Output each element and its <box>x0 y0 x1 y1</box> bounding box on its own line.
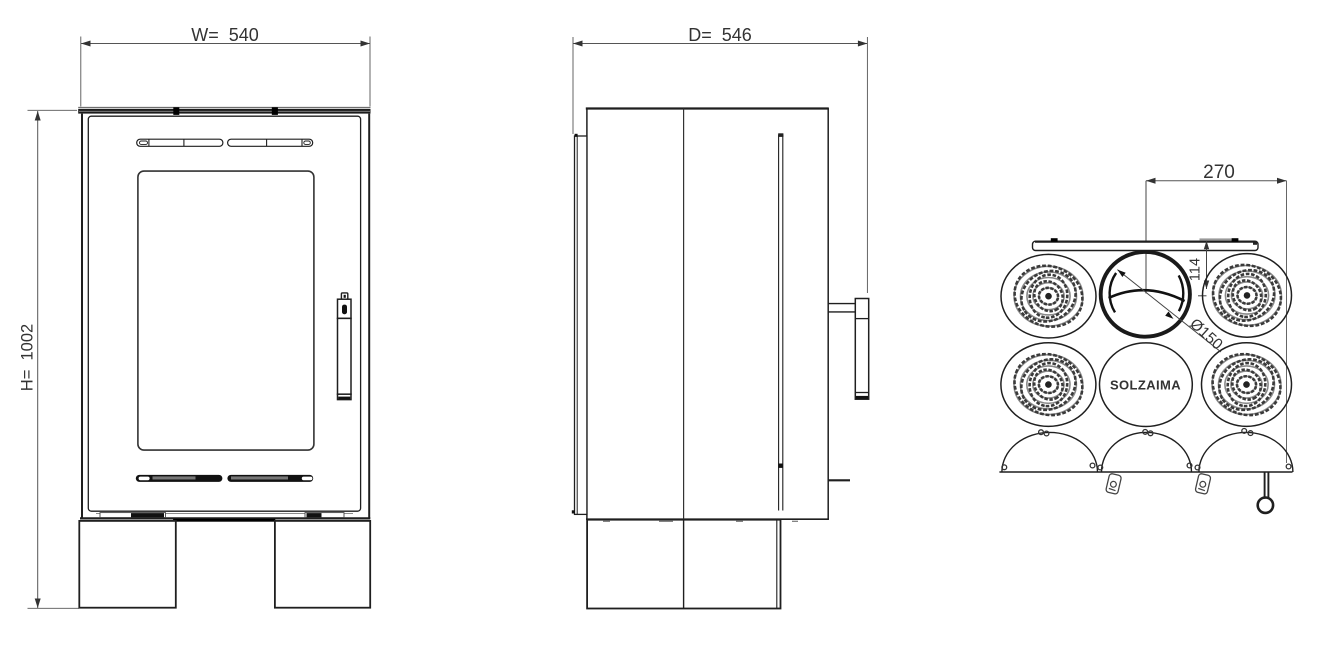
svg-text:114: 114 <box>1188 258 1204 281</box>
svg-text:W= 540: W= 540 <box>191 25 259 45</box>
svg-text:270: 270 <box>1203 162 1235 183</box>
svg-text:Ø150: Ø150 <box>1186 315 1226 353</box>
svg-text:H= 1002: H= 1002 <box>19 324 37 391</box>
svg-text:SOLZAIMA: SOLZAIMA <box>1110 377 1181 392</box>
svg-text:D= 546: D= 546 <box>688 25 752 45</box>
